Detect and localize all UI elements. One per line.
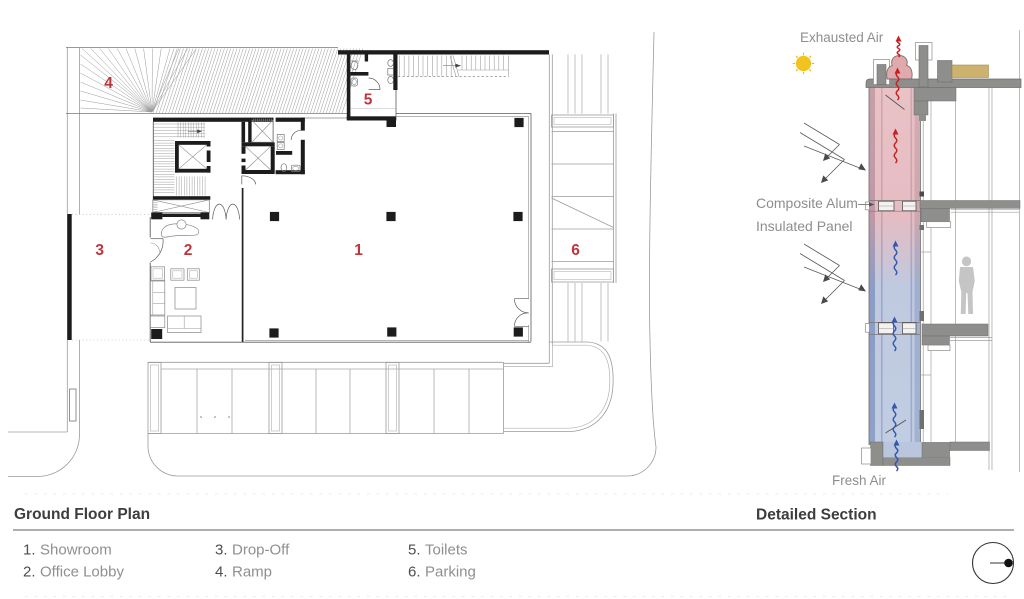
svg-text:2.: 2. [23, 564, 36, 581]
svg-text:Exhausted Air: Exhausted Air [800, 30, 884, 45]
svg-text:1.: 1. [23, 542, 36, 559]
svg-text:Parking: Parking [425, 564, 476, 581]
svg-text:4.: 4. [215, 564, 228, 581]
svg-text:Showroom: Showroom [40, 542, 112, 559]
svg-text:Office Lobby: Office Lobby [40, 564, 124, 581]
svg-text:3: 3 [95, 242, 104, 259]
svg-text:Composite Alum: Composite Alum [756, 195, 858, 211]
svg-text:6: 6 [571, 242, 580, 259]
svg-text:3.: 3. [215, 542, 228, 559]
svg-text:1: 1 [354, 242, 363, 259]
svg-text:4: 4 [104, 75, 113, 92]
svg-text:5: 5 [364, 92, 373, 109]
svg-text:Fresh Air: Fresh Air [832, 473, 887, 488]
svg-text:5.: 5. [408, 542, 421, 559]
svg-text:2: 2 [184, 242, 193, 259]
svg-text:6.: 6. [408, 564, 421, 581]
svg-text:Drop-Off: Drop-Off [232, 542, 290, 559]
svg-text:Insulated Panel: Insulated Panel [756, 218, 853, 234]
svg-text:Ramp: Ramp [232, 564, 272, 581]
svg-text:Toilets: Toilets [425, 542, 468, 559]
svg-text:Detailed Section: Detailed Section [756, 507, 877, 524]
svg-text:Ground Floor Plan: Ground Floor Plan [14, 506, 150, 523]
